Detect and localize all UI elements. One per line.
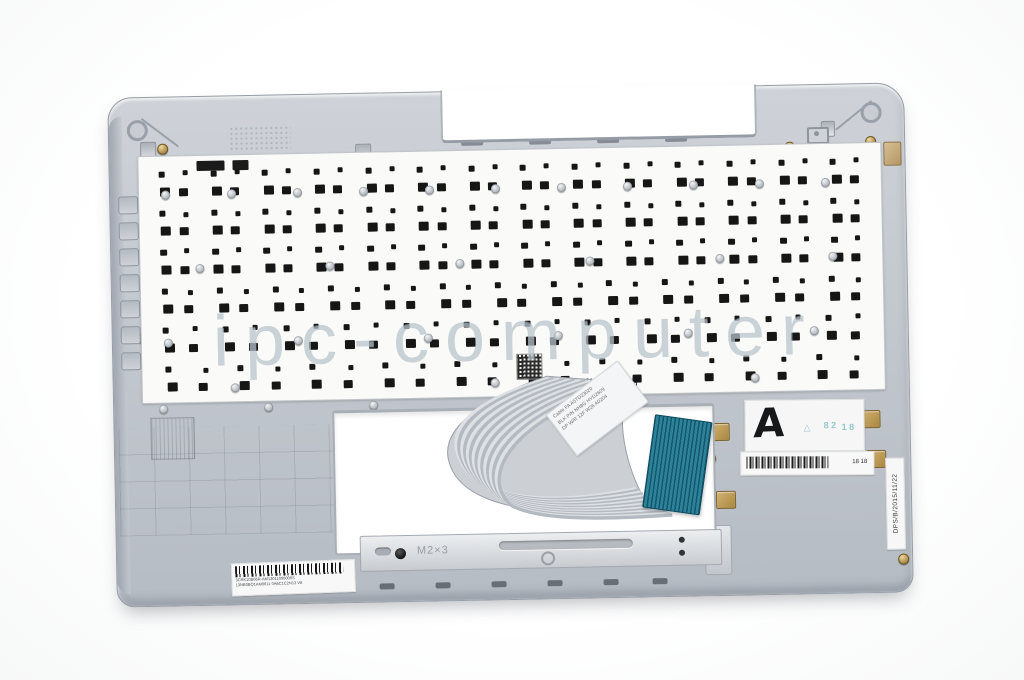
key-cutout: [266, 284, 313, 315]
key-cutout: [670, 198, 713, 229]
key-cutout: [566, 200, 609, 231]
key-cutout: [336, 321, 388, 352]
latch-feature: [807, 127, 829, 144]
key-cutout: [515, 240, 558, 271]
screw: [554, 331, 563, 340]
key-cutout: [566, 161, 609, 192]
screw: [689, 180, 698, 189]
key-cutout: [153, 169, 196, 200]
key-cutout: [722, 236, 765, 267]
barcode-label: 18 18: [740, 451, 874, 476]
key-cutout: [204, 168, 247, 199]
key-cutout: [600, 277, 647, 308]
latch-slot: [492, 581, 507, 587]
rail-pocket: [119, 248, 139, 266]
round-hole: [541, 551, 555, 565]
key-cutout: [655, 276, 702, 307]
key-cutout: [464, 241, 507, 272]
grade-letter: A: [753, 400, 785, 447]
key-cutout: [156, 364, 220, 395]
qc-stamp: 1 8: [842, 422, 855, 432]
key-cutout: [818, 312, 870, 343]
key-cutout: [822, 273, 869, 304]
latch-slot: [548, 580, 563, 586]
screw: [395, 548, 406, 559]
screw: [684, 328, 693, 337]
latch-slot: [604, 579, 619, 585]
molded-dot-texture: [229, 125, 291, 152]
key-cutout: [154, 247, 197, 278]
latch-slot: [436, 582, 451, 588]
qc-stamp: 8 2: [824, 420, 837, 430]
adjust-slot: [499, 539, 633, 551]
key-row: [154, 234, 868, 278]
key-cutout: [824, 156, 867, 187]
key-cutout: [515, 201, 558, 232]
ribbed-texture-patch: [150, 417, 195, 460]
latch-slot: [380, 583, 395, 589]
key-cutout: [322, 283, 369, 314]
rail-pocket: [118, 196, 138, 214]
serial-barcode-label: 3CRK10B06R-AM13011090000S 13NB0BQ1AM0611…: [231, 559, 356, 597]
key-cutout: [206, 246, 249, 277]
key-cutout: [758, 313, 810, 344]
key-cutout: [488, 280, 535, 311]
oval-hole: [375, 547, 391, 555]
key-cutout: [670, 237, 713, 268]
screw: [455, 259, 464, 268]
barcode: [746, 456, 828, 468]
qc-stamp: △: [804, 422, 811, 433]
latch-slot: [653, 578, 668, 584]
key-cutout: [514, 162, 557, 193]
rail-pocket: [121, 326, 141, 344]
rail-pocket: [120, 300, 140, 318]
key-cutout: [155, 286, 202, 317]
palmrest-assembly: M2×3 Cable FA A5TD23020 BLK P/N NH8G HYD…: [107, 82, 914, 607]
screw: [821, 178, 830, 187]
rivet: [679, 550, 685, 556]
screw: [623, 182, 632, 191]
key-row: [153, 156, 867, 200]
screw: [557, 183, 566, 192]
screw: [369, 401, 378, 410]
key-cutout: [361, 243, 404, 274]
rivet: [679, 537, 685, 543]
key-cutout: [412, 242, 455, 273]
key-cutout: [216, 324, 268, 355]
key-cutout: [307, 166, 350, 197]
key-cutout: [463, 202, 506, 233]
date-code-sticker: DPS/B/2015/11/22: [885, 457, 906, 549]
rail-pocket: [119, 222, 139, 240]
key-cutout: [205, 207, 248, 238]
grade-sticker: A △ 8 2 1 8: [744, 399, 864, 452]
key-cutout: [301, 361, 365, 392]
screw: [227, 189, 236, 198]
key-cutout: [766, 274, 813, 305]
key-cutout: [773, 196, 816, 227]
key-cutout: [257, 245, 300, 276]
key-cutout: [411, 203, 454, 234]
rail-pocket: [120, 274, 140, 292]
bracket-size-marking: M2×3: [417, 544, 449, 557]
key-cutout: [544, 278, 591, 309]
key-cutout: [618, 199, 661, 230]
barcode-text: 18 18: [852, 459, 867, 465]
date-code-text: DPS/B/2015/11/22: [892, 474, 900, 534]
key-cutout: [433, 281, 480, 312]
screw: [898, 553, 909, 564]
key-cutout: [308, 205, 351, 236]
key-cutout: [377, 282, 424, 313]
key-cutout: [711, 275, 758, 306]
key-cutout: [774, 235, 817, 266]
key-cutout: [153, 208, 196, 239]
product-photo: M2×3 Cable FA A5TD23020 BLK P/N NH8G HYD…: [0, 0, 1024, 680]
key-cutout: [360, 204, 403, 235]
hinge-notch: [440, 84, 757, 143]
key-cutout: [619, 238, 662, 269]
key-cutout: [721, 197, 764, 228]
key-cutout: [825, 195, 868, 226]
screw: [264, 403, 273, 412]
key-row: [153, 195, 867, 239]
adhesive-pad: [883, 141, 901, 165]
key-cutout: [257, 206, 300, 237]
key-cutout: [772, 157, 815, 188]
key-cutout: [735, 352, 799, 383]
rail-pocket: [121, 352, 141, 370]
key-row: [155, 273, 869, 317]
screw: [159, 405, 168, 414]
touchpad-bracket: M2×3: [360, 529, 723, 572]
key-cutout: [210, 285, 257, 316]
screw: [157, 144, 168, 155]
key-cutout: [807, 351, 871, 382]
